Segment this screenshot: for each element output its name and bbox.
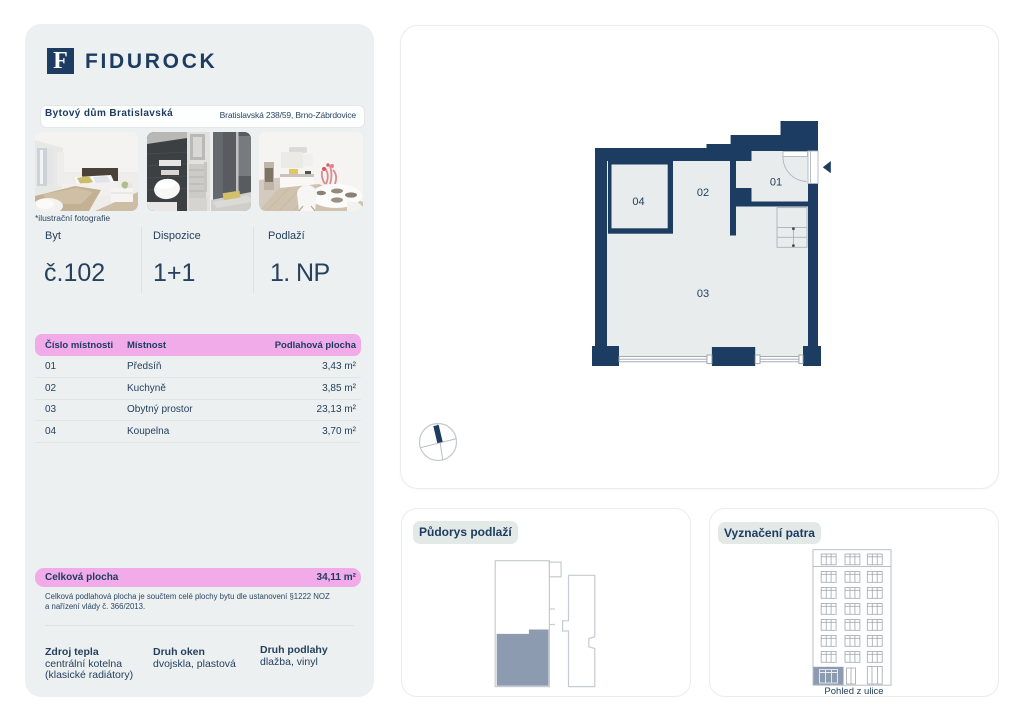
svg-text:04: 04 <box>632 196 644 208</box>
svg-text:02: 02 <box>697 187 709 199</box>
svg-text:03: 03 <box>697 288 709 300</box>
svg-text:Pohled z ulice: Pohled z ulice <box>824 686 883 697</box>
svg-text:01: 01 <box>770 177 782 189</box>
